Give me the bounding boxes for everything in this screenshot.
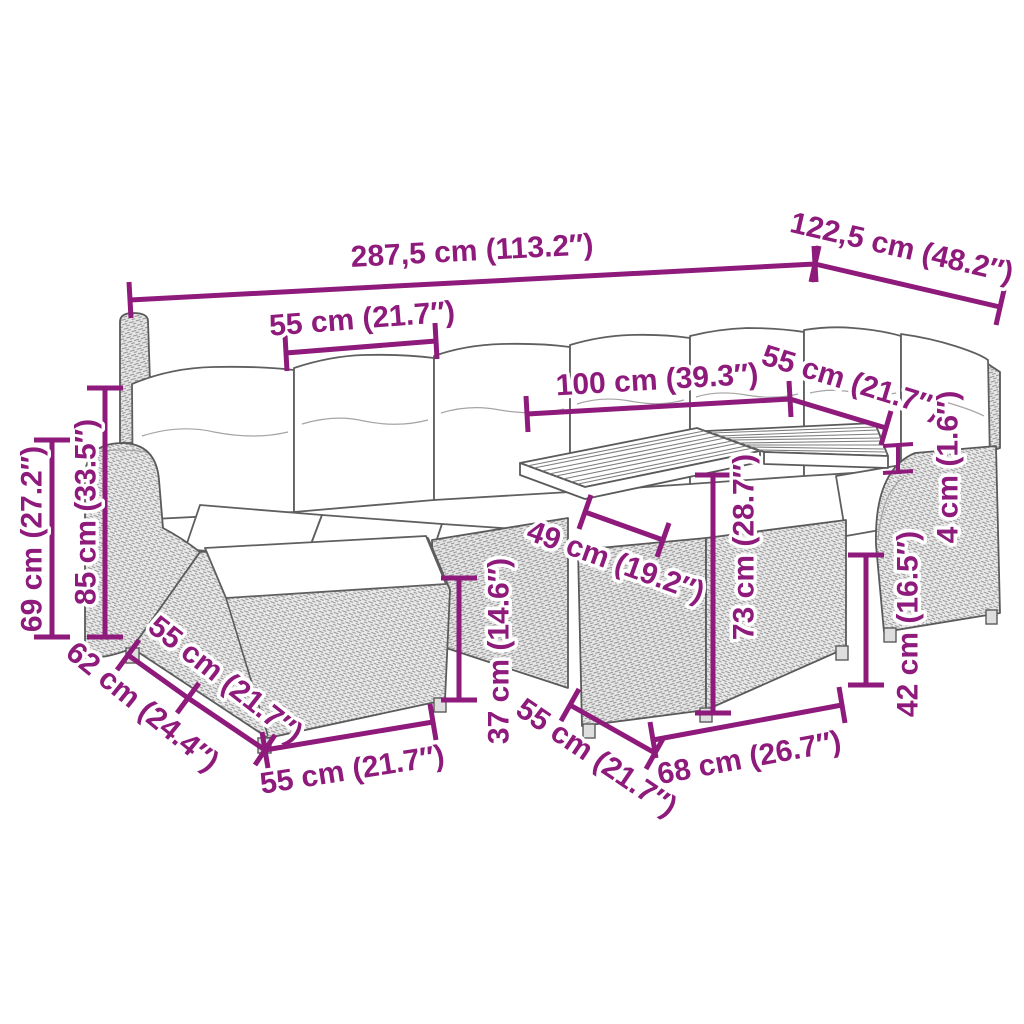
dim-label-overall-depth: 122,5 cm (48.2″) xyxy=(787,206,1016,289)
dim-arm-height: 69 cm (27.2″) xyxy=(16,440,71,637)
dim-overall-width: 287,5 cm (113.2″) xyxy=(129,228,816,318)
dim-label-back-height: 85 cm (33.5″) xyxy=(70,419,103,605)
dim-overall-depth: 122,5 cm (48.2″) xyxy=(787,206,1016,325)
diagram-canvas: 287,5 cm (113.2″) 122,5 cm (48.2″) 55 cm… xyxy=(0,0,1024,1024)
dim-label-back-cushion-width: 55 cm (21.7″) xyxy=(268,295,456,343)
furniture-dimension-diagram: 287,5 cm (113.2″) 122,5 cm (48.2″) 55 cm… xyxy=(0,0,1024,1024)
back-pillow xyxy=(294,355,434,512)
dim-label-top-thickness: 4 cm (1.6″) xyxy=(932,391,965,544)
dim-label-arm-height: 69 cm (27.2″) xyxy=(16,446,49,632)
dim-label-overall-width: 287,5 cm (113.2″) xyxy=(350,228,594,274)
dim-label-table-height: 73 cm (28.7″) xyxy=(728,454,761,640)
dim-label-ottoman-height: 37 cm (14.6″) xyxy=(483,558,516,744)
dim-label-side-height: 42 cm (16.5″) xyxy=(892,531,925,717)
